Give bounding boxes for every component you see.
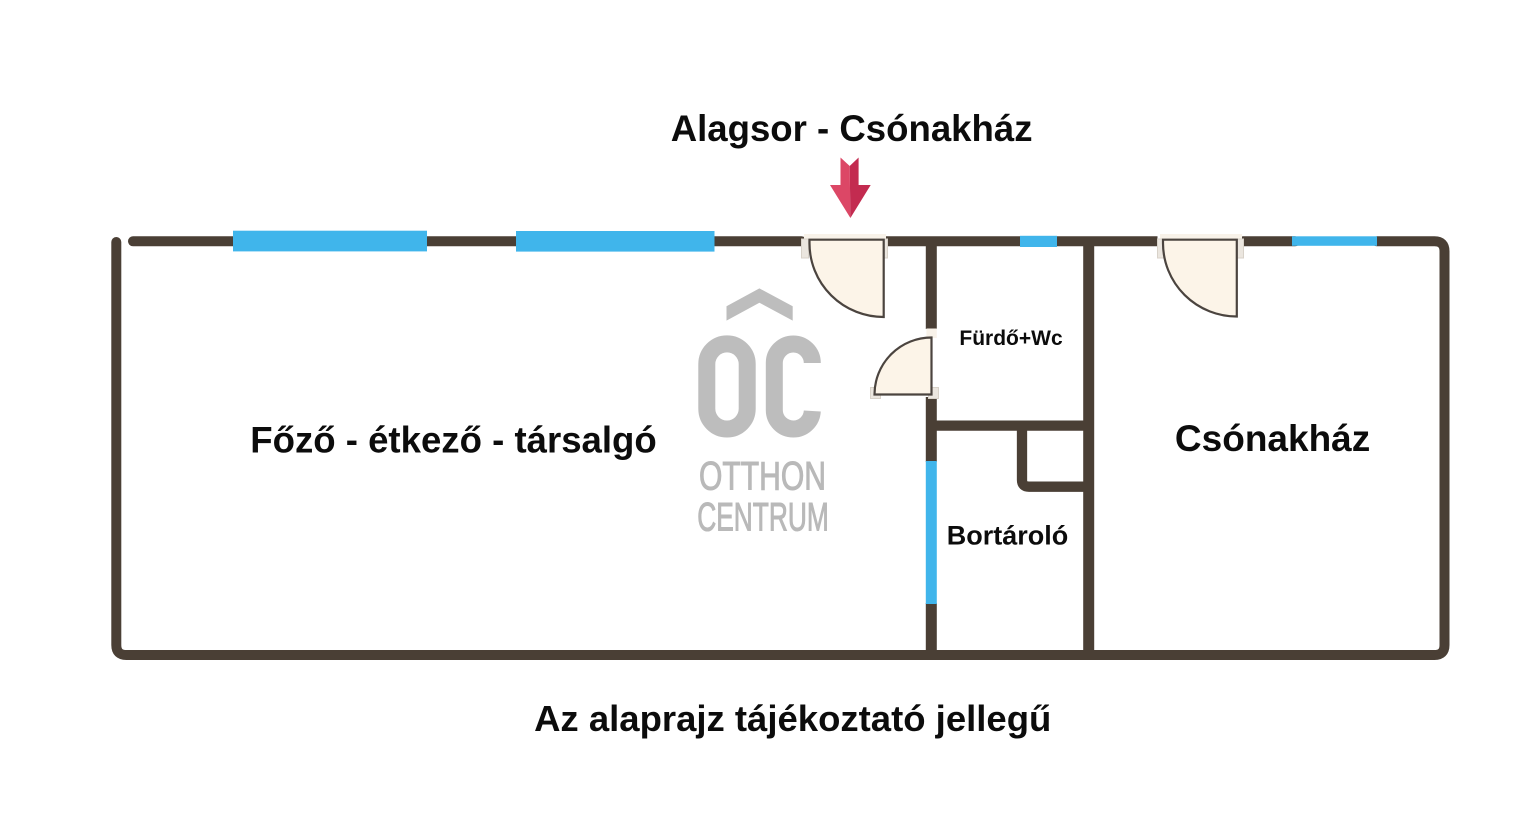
svg-text:CENTRUM: CENTRUM (697, 496, 829, 540)
svg-text:Alagsor - Csónakház: Alagsor - Csónakház (671, 108, 1033, 149)
svg-text:OTTHON: OTTHON (699, 454, 826, 498)
svg-text:Bortároló: Bortároló (947, 521, 1069, 551)
svg-text:Csónakház: Csónakház (1175, 418, 1370, 459)
svg-text:Főző - étkező - társalgó: Főző - étkező - társalgó (250, 420, 656, 461)
svg-text:Fürdő+Wc: Fürdő+Wc (959, 327, 1063, 350)
svg-text:Az alaprajz tájékoztató jelleg: Az alaprajz tájékoztató jellegű (534, 698, 1051, 739)
